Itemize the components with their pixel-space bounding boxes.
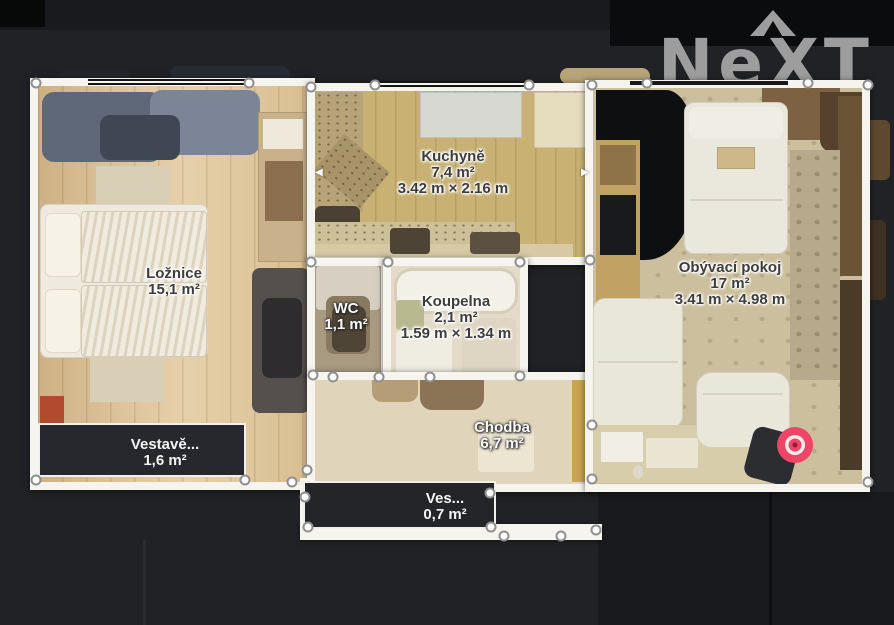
room-label-chodba: Chodba 6,7 m² [474,420,530,452]
kitchen-table [420,92,522,138]
sofa-tan-box [717,147,755,169]
measure-node[interactable] [515,371,526,382]
measure-node[interactable] [374,372,385,383]
measure-node[interactable] [499,531,510,542]
bottle [633,465,643,479]
measure-node[interactable] [306,257,317,268]
measure-node[interactable] [303,522,314,533]
kitchen-appliance [470,232,520,254]
measure-node[interactable] [370,80,381,91]
sofa-back-cushion [689,107,783,139]
wardrobe-clutter [252,268,310,413]
kitchen-appliance [390,228,430,254]
measure-node[interactable] [300,492,311,503]
measure-node[interactable] [328,372,339,383]
measure-node[interactable] [556,531,567,542]
wall-rail-mark [630,81,788,85]
shelf-item [263,119,303,149]
measure-node[interactable] [587,420,598,431]
clothes-clutter [100,115,180,160]
measure-node[interactable] [425,372,436,383]
measure-node[interactable] [524,80,535,91]
room-label-obyvaci-pokoj: Obývací pokoj 17 m² 3.41 m × 4.98 m [675,260,786,308]
sofa-cushion-line [598,361,678,363]
room-label-vestavena-1: Vestavě... 1,6 m² [131,437,199,469]
room-chodba[interactable] [307,372,600,492]
kitchen-counter-bottom-2 [315,244,573,258]
armchair-back-line [703,393,783,395]
background-corner-topleft [0,0,45,27]
room-label-wc: WC 1,1 m² [324,301,367,333]
shelf-item [265,161,303,221]
paper [601,432,643,462]
closet-vestavena-2[interactable] [303,481,496,529]
curtain-right [840,280,862,470]
camera-position-marker[interactable] [777,427,813,463]
shelf [258,112,308,262]
measure-node[interactable] [591,525,602,536]
resize-arrow-left-icon[interactable]: ◀ [315,168,323,178]
sofa-left [593,298,683,428]
measure-node[interactable] [306,82,317,93]
kitchen-cabinet [534,92,588,148]
orange-item [40,396,64,424]
measure-node[interactable] [244,78,255,89]
paper [646,438,698,468]
cabinet-item [600,145,636,185]
room-label-loznice: Ložnice 15,1 m² [146,266,202,298]
pillow [45,289,81,353]
measure-node[interactable] [515,257,526,268]
patterned-wall [790,150,840,380]
rug [90,356,164,402]
measure-node[interactable] [485,488,496,499]
measure-node[interactable] [31,78,42,89]
measure-node[interactable] [642,78,653,89]
measure-node[interactable] [31,475,42,486]
wardrobe-right [838,96,862,276]
measure-node[interactable] [486,522,497,533]
background-seam-line [143,540,146,625]
wardrobe-clutter-dark [262,298,302,378]
measure-node[interactable] [308,370,319,381]
room-label-kuchyne: Kuchyně 7,4 m² 3.42 m × 2.16 m [398,149,509,197]
sofa-top [684,102,788,254]
measure-node[interactable] [863,477,874,488]
measure-node[interactable] [803,78,814,89]
wall-rail-mark [88,79,250,85]
sofa-seat-line [691,199,783,201]
measure-node[interactable] [302,465,313,476]
measure-node[interactable] [240,475,251,486]
measure-node[interactable] [585,255,596,266]
background-bottom-right [598,492,894,625]
measure-node[interactable] [287,477,298,488]
background-seam-vertical [769,492,772,625]
measure-node[interactable] [587,80,598,91]
tv-screen [600,195,636,255]
tv-cabinet [596,140,640,305]
pillow [45,213,81,277]
floorplan-viewer: NeXT [0,0,894,625]
measure-node[interactable] [383,257,394,268]
measure-node[interactable] [863,80,874,91]
marker-center-dot [793,443,798,448]
doorway-blob [372,380,418,402]
room-label-vestavena-2: Ves... 0,7 m² [423,491,466,523]
wall-rail-mark [374,81,530,87]
resize-arrow-right-icon[interactable]: ▶ [581,168,589,178]
measure-node[interactable] [587,474,598,485]
room-label-koupelna: Koupelna 2,1 m² 1.59 m × 1.34 m [401,294,512,342]
doorway-blob [420,380,484,410]
